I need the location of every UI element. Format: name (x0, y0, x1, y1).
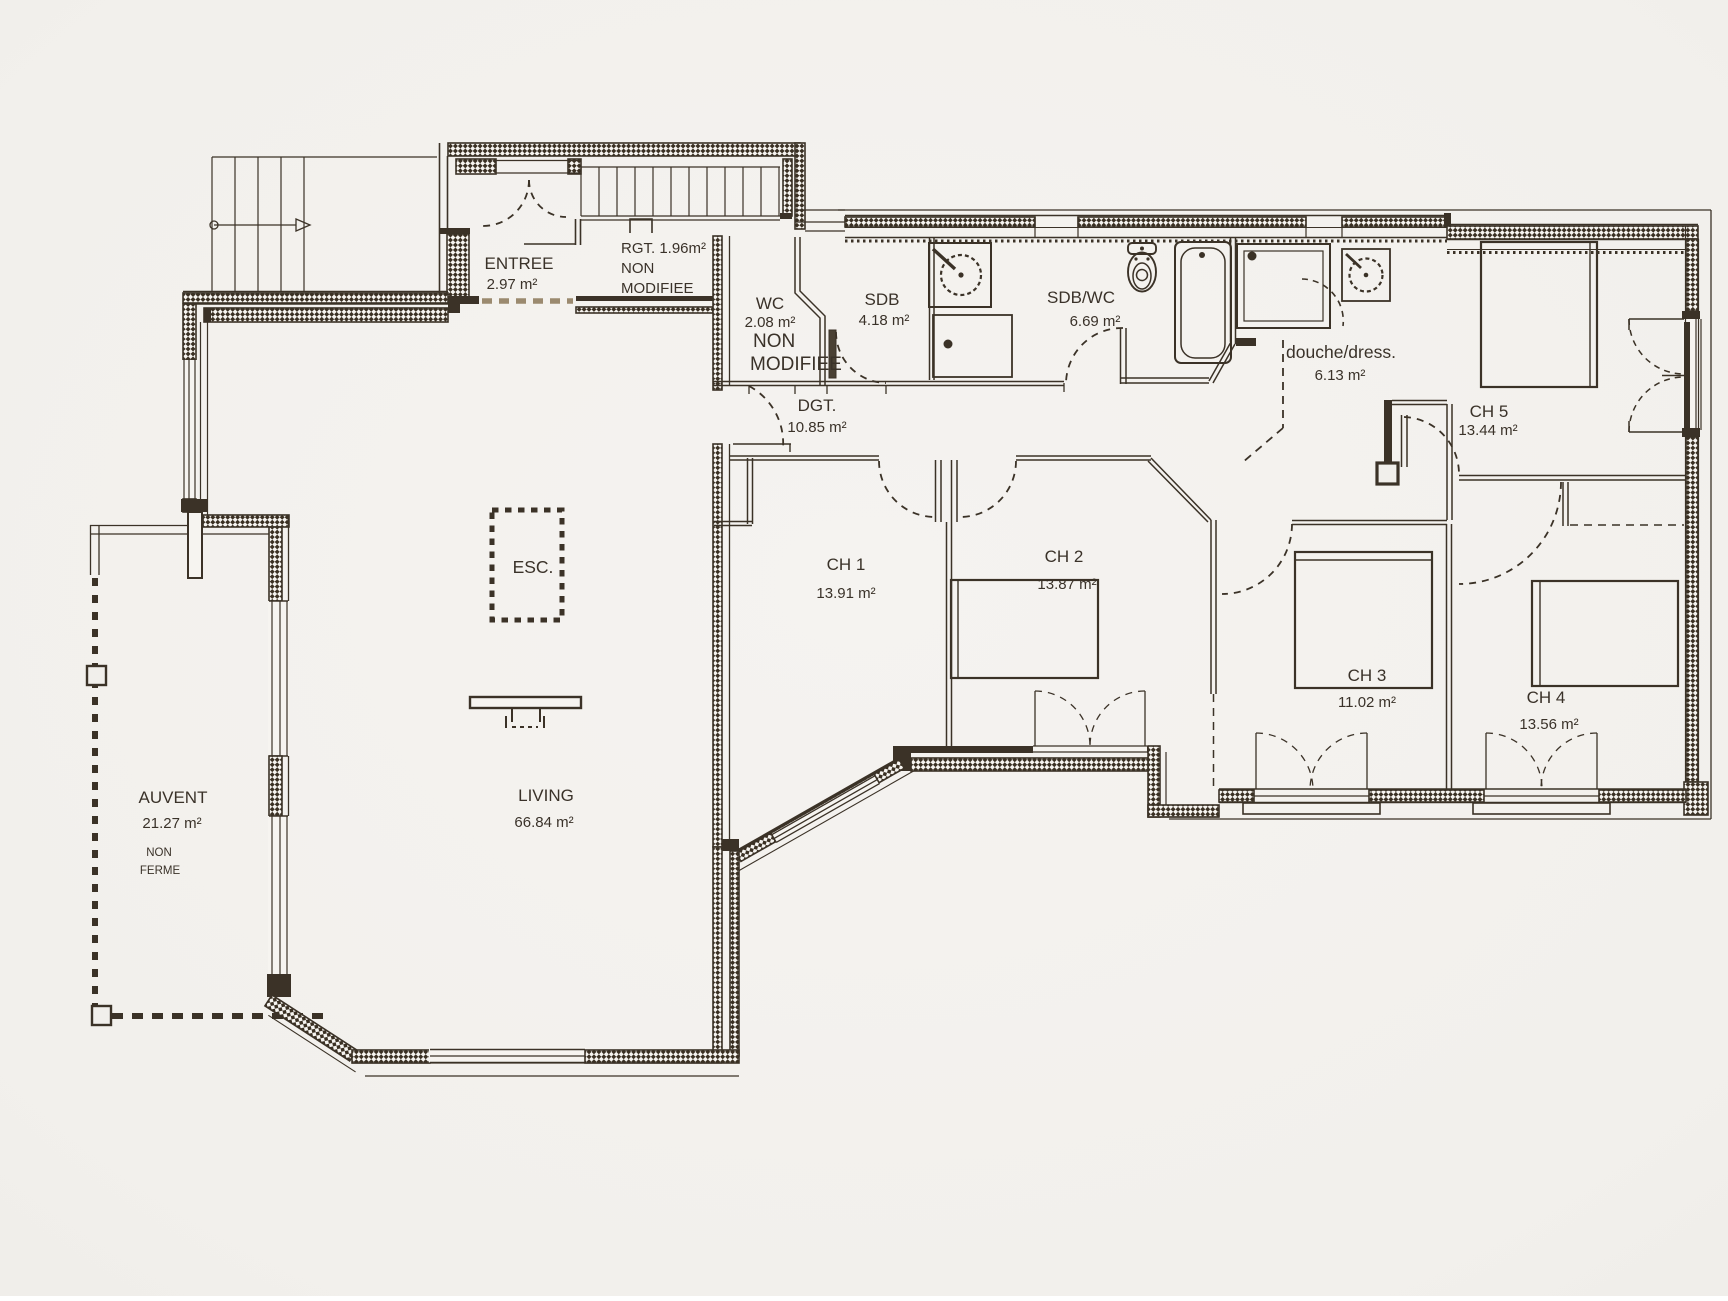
svg-text:CH 4: CH 4 (1527, 688, 1566, 707)
svg-text:CH 2: CH 2 (1045, 547, 1084, 566)
svg-text:11.02 m²: 11.02 m² (1338, 694, 1396, 711)
svg-text:2.97 m²: 2.97 m² (487, 276, 538, 293)
svg-text:MODIFIEE: MODIFIEE (621, 280, 694, 297)
svg-text:10.85 m²: 10.85 m² (787, 419, 846, 436)
svg-text:WC: WC (756, 294, 784, 313)
svg-text:13.56 m²: 13.56 m² (1519, 716, 1578, 733)
svg-text:66.84 m²: 66.84 m² (514, 814, 573, 831)
svg-text:douche/dress.: douche/dress. (1286, 342, 1396, 362)
svg-text:AUVENT: AUVENT (139, 788, 208, 807)
svg-text:NON: NON (621, 260, 654, 277)
svg-text:13.91 m²: 13.91 m² (816, 585, 875, 602)
svg-text:2.08 m²: 2.08 m² (745, 314, 796, 331)
svg-text:4.18 m²: 4.18 m² (859, 312, 910, 329)
svg-text:NON: NON (753, 331, 795, 352)
svg-text:SDB: SDB (865, 290, 900, 309)
svg-text:ENTREE: ENTREE (485, 254, 554, 273)
svg-text:21.27 m²: 21.27 m² (142, 815, 201, 832)
svg-text:CH 1: CH 1 (827, 555, 866, 574)
svg-text:6.13 m²: 6.13 m² (1315, 367, 1366, 384)
svg-text:SDB/WC: SDB/WC (1047, 288, 1115, 307)
svg-text:MODIFIEE: MODIFIEE (750, 354, 842, 375)
svg-text:NON: NON (146, 847, 172, 859)
svg-text:13.44 m²: 13.44 m² (1458, 422, 1517, 439)
svg-text:ESC.: ESC. (513, 557, 554, 577)
svg-text:CH 3: CH 3 (1348, 666, 1387, 685)
svg-text:13.87 m²: 13.87 m² (1037, 576, 1096, 593)
svg-text:CH 5: CH 5 (1470, 402, 1509, 421)
svg-text:6.69 m²: 6.69 m² (1070, 313, 1121, 330)
svg-text:RGT. 1.96m²: RGT. 1.96m² (621, 240, 706, 257)
svg-text:LIVING: LIVING (518, 786, 574, 805)
svg-text:DGT.: DGT. (798, 396, 837, 415)
svg-text:FERME: FERME (140, 865, 181, 877)
